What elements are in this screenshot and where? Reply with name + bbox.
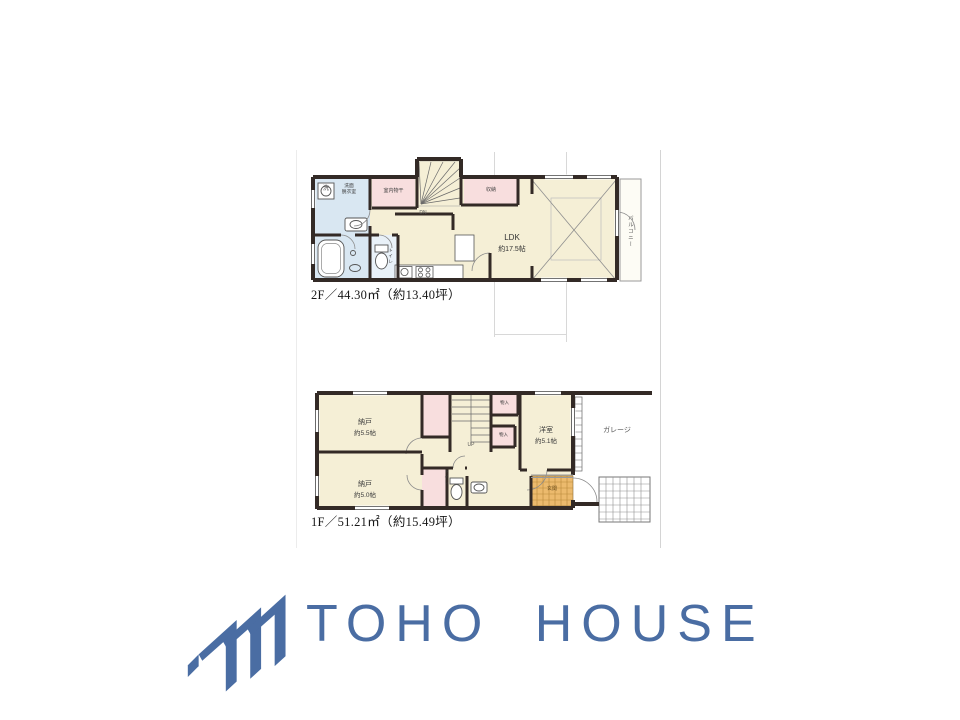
1f-stairs-up-label: UP bbox=[464, 442, 478, 448]
toho-house-logo bbox=[186, 580, 300, 698]
page: { "floorplan": { "floor2": { "area_label… bbox=[0, 0, 960, 720]
1f-closet-a bbox=[422, 394, 449, 437]
toilet-tank bbox=[450, 478, 463, 484]
toho-house-logo-icon bbox=[186, 580, 300, 698]
1f-porch-tile bbox=[599, 477, 650, 522]
1f-garage-shutter bbox=[575, 397, 582, 471]
2f-stairs-dn-label: DN bbox=[416, 210, 430, 216]
2f-drying-room-label: 室内物干 bbox=[371, 188, 416, 194]
2f-ldk-label: LDK 約17.5帖 bbox=[482, 226, 542, 255]
2f-washroom-label: 洗面 脱衣室 bbox=[336, 184, 362, 196]
2f-area-label: 2F／44.30㎡（約13.40坪） bbox=[311, 284, 461, 303]
floorplan-1f bbox=[295, 380, 667, 530]
toilet-tank bbox=[375, 245, 388, 252]
1f-area-label: 1F／51.21㎡（約15.49坪） bbox=[311, 511, 461, 530]
toho-house-logo-text: TOHO HOUSE bbox=[306, 592, 765, 656]
1f-mini-closet-2-label: 物入 bbox=[491, 432, 516, 438]
toilet-bowl bbox=[376, 253, 388, 269]
1f-mini-closet-1-label: 物入 bbox=[492, 400, 517, 406]
roof-chevrons-icon bbox=[188, 595, 286, 692]
bathtub bbox=[318, 240, 344, 277]
refrigerator-space bbox=[455, 235, 474, 261]
floorplan-2f bbox=[295, 150, 667, 302]
1f-storage2-label: 納戸 約5.0帖 bbox=[335, 472, 395, 500]
2f-balcony-label: バルコニー bbox=[626, 204, 633, 259]
guide-line-horizontal-1 bbox=[494, 334, 567, 335]
1f-garage-label: ガレージ bbox=[587, 427, 647, 436]
2f-toilet-label: トイレ bbox=[388, 245, 394, 267]
floorplan-1f-drawing bbox=[295, 380, 667, 530]
vanity-basin bbox=[345, 218, 367, 231]
1f-entrance-label: 玄関 bbox=[537, 486, 567, 492]
2f-closet-label: 収納 bbox=[466, 187, 516, 193]
1f-western-room-label: 洋室 約5.1帖 bbox=[516, 418, 576, 446]
1f-toilet-label: トイレ bbox=[444, 466, 450, 488]
2f-wash-symbol: 洗 bbox=[320, 186, 332, 194]
1f-storage1-label: 納戸 約5.5帖 bbox=[335, 410, 395, 438]
floorplan-2f-drawing bbox=[295, 150, 667, 302]
toilet-bowl bbox=[451, 485, 462, 500]
